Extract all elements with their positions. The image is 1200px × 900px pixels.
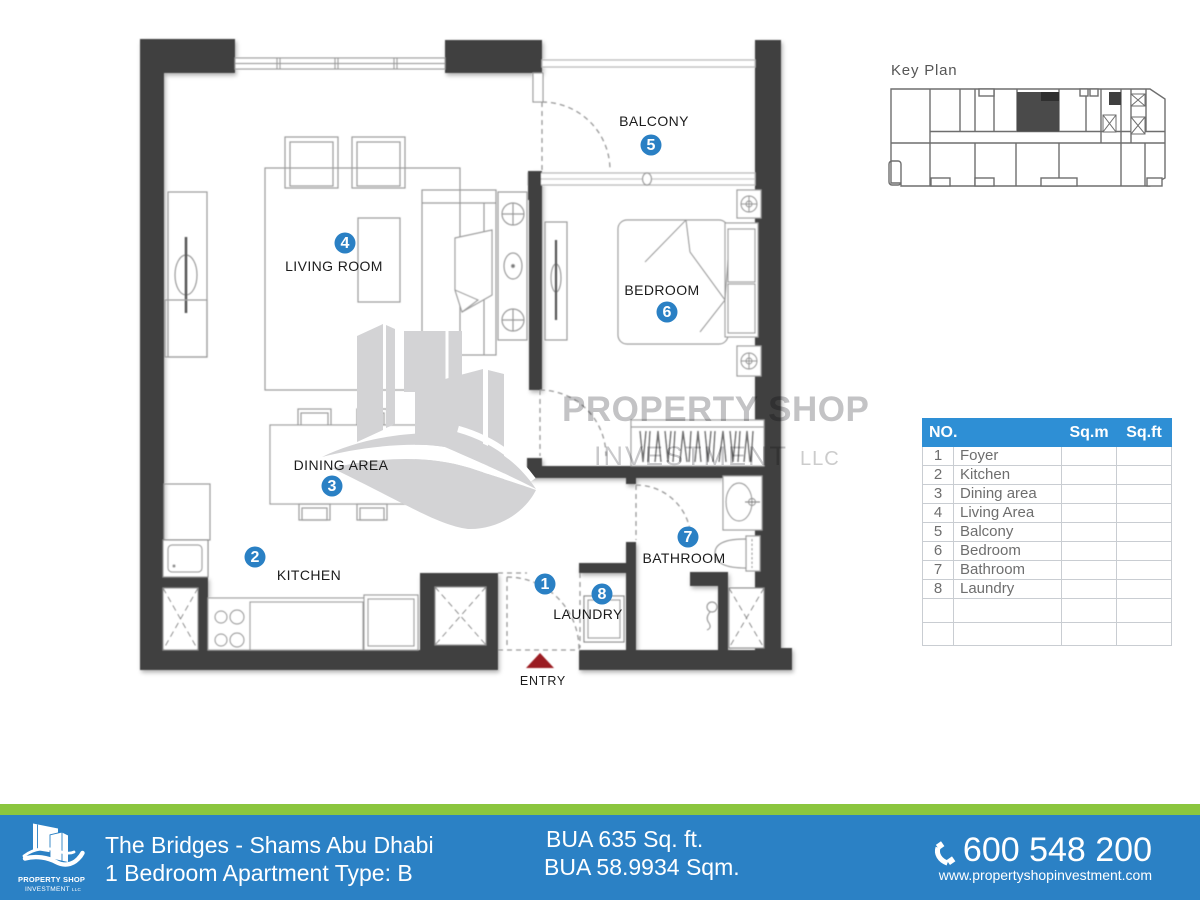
svg-text:DINING AREA: DINING AREA — [294, 457, 389, 473]
svg-text:5: 5 — [647, 137, 656, 154]
svg-text:LIVING ROOM: LIVING ROOM — [285, 258, 383, 274]
svg-text:7: 7 — [684, 529, 693, 546]
svg-text:BALCONY: BALCONY — [619, 113, 689, 129]
svg-text:KITCHEN: KITCHEN — [277, 567, 341, 583]
svg-text:LAUNDRY: LAUNDRY — [553, 606, 623, 622]
svg-text:2: 2 — [251, 549, 260, 566]
svg-text:INVESTMENT: INVESTMENT — [594, 441, 788, 471]
svg-text:1: 1 — [541, 576, 550, 593]
svg-text:LLC: LLC — [800, 448, 840, 470]
svg-text:3: 3 — [328, 478, 337, 495]
svg-text:8: 8 — [598, 586, 607, 603]
svg-text:BEDROOM: BEDROOM — [624, 282, 699, 298]
svg-text:Key Plan: Key Plan — [891, 62, 957, 79]
svg-text:ENTRY: ENTRY — [520, 674, 566, 688]
svg-text:4: 4 — [341, 235, 350, 252]
svg-text:6: 6 — [663, 304, 672, 321]
svg-text:PROPERTY SHOP: PROPERTY SHOP — [562, 390, 869, 429]
svg-text:BATHROOM: BATHROOM — [642, 550, 725, 566]
